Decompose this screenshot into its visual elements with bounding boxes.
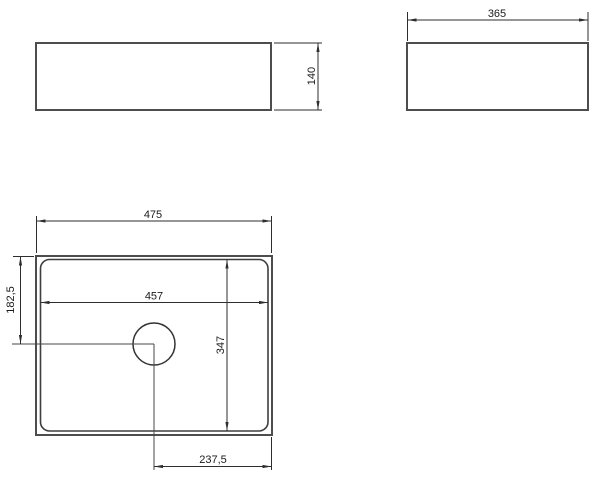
side-view: 365 [407, 8, 588, 110]
side-view-outline [407, 43, 588, 110]
side-width-label: 365 [488, 8, 506, 20]
drain-offset-left-label: 182,5 [5, 286, 17, 314]
drawing-canvas: 140 365 475 [0, 0, 600, 480]
drain-offset-bottom-label: 237,5 [199, 454, 227, 466]
plan-inner-width-label: 457 [145, 291, 163, 303]
plan-view: 475 182,5 457 347 237,5 [5, 209, 272, 470]
side-width-dimension: 365 [408, 8, 589, 41]
plan-inner-depth-label: 347 [215, 336, 227, 354]
plan-inner-depth-dimension: 347 [215, 260, 227, 432]
technical-drawing: 140 365 475 [0, 0, 600, 480]
front-height-dimension: 140 [274, 43, 322, 110]
plan-outer-width-label: 475 [144, 209, 162, 221]
drain-offset-left-dimension: 182,5 [5, 257, 34, 345]
front-view-outline [36, 43, 271, 110]
plan-outer-width-dimension: 475 [37, 209, 272, 253]
front-view: 140 [36, 43, 322, 110]
plan-inner-width-dimension: 457 [41, 291, 269, 303]
drain-offset-bottom-dimension: 237,5 [154, 437, 272, 470]
front-height-label: 140 [306, 67, 318, 85]
